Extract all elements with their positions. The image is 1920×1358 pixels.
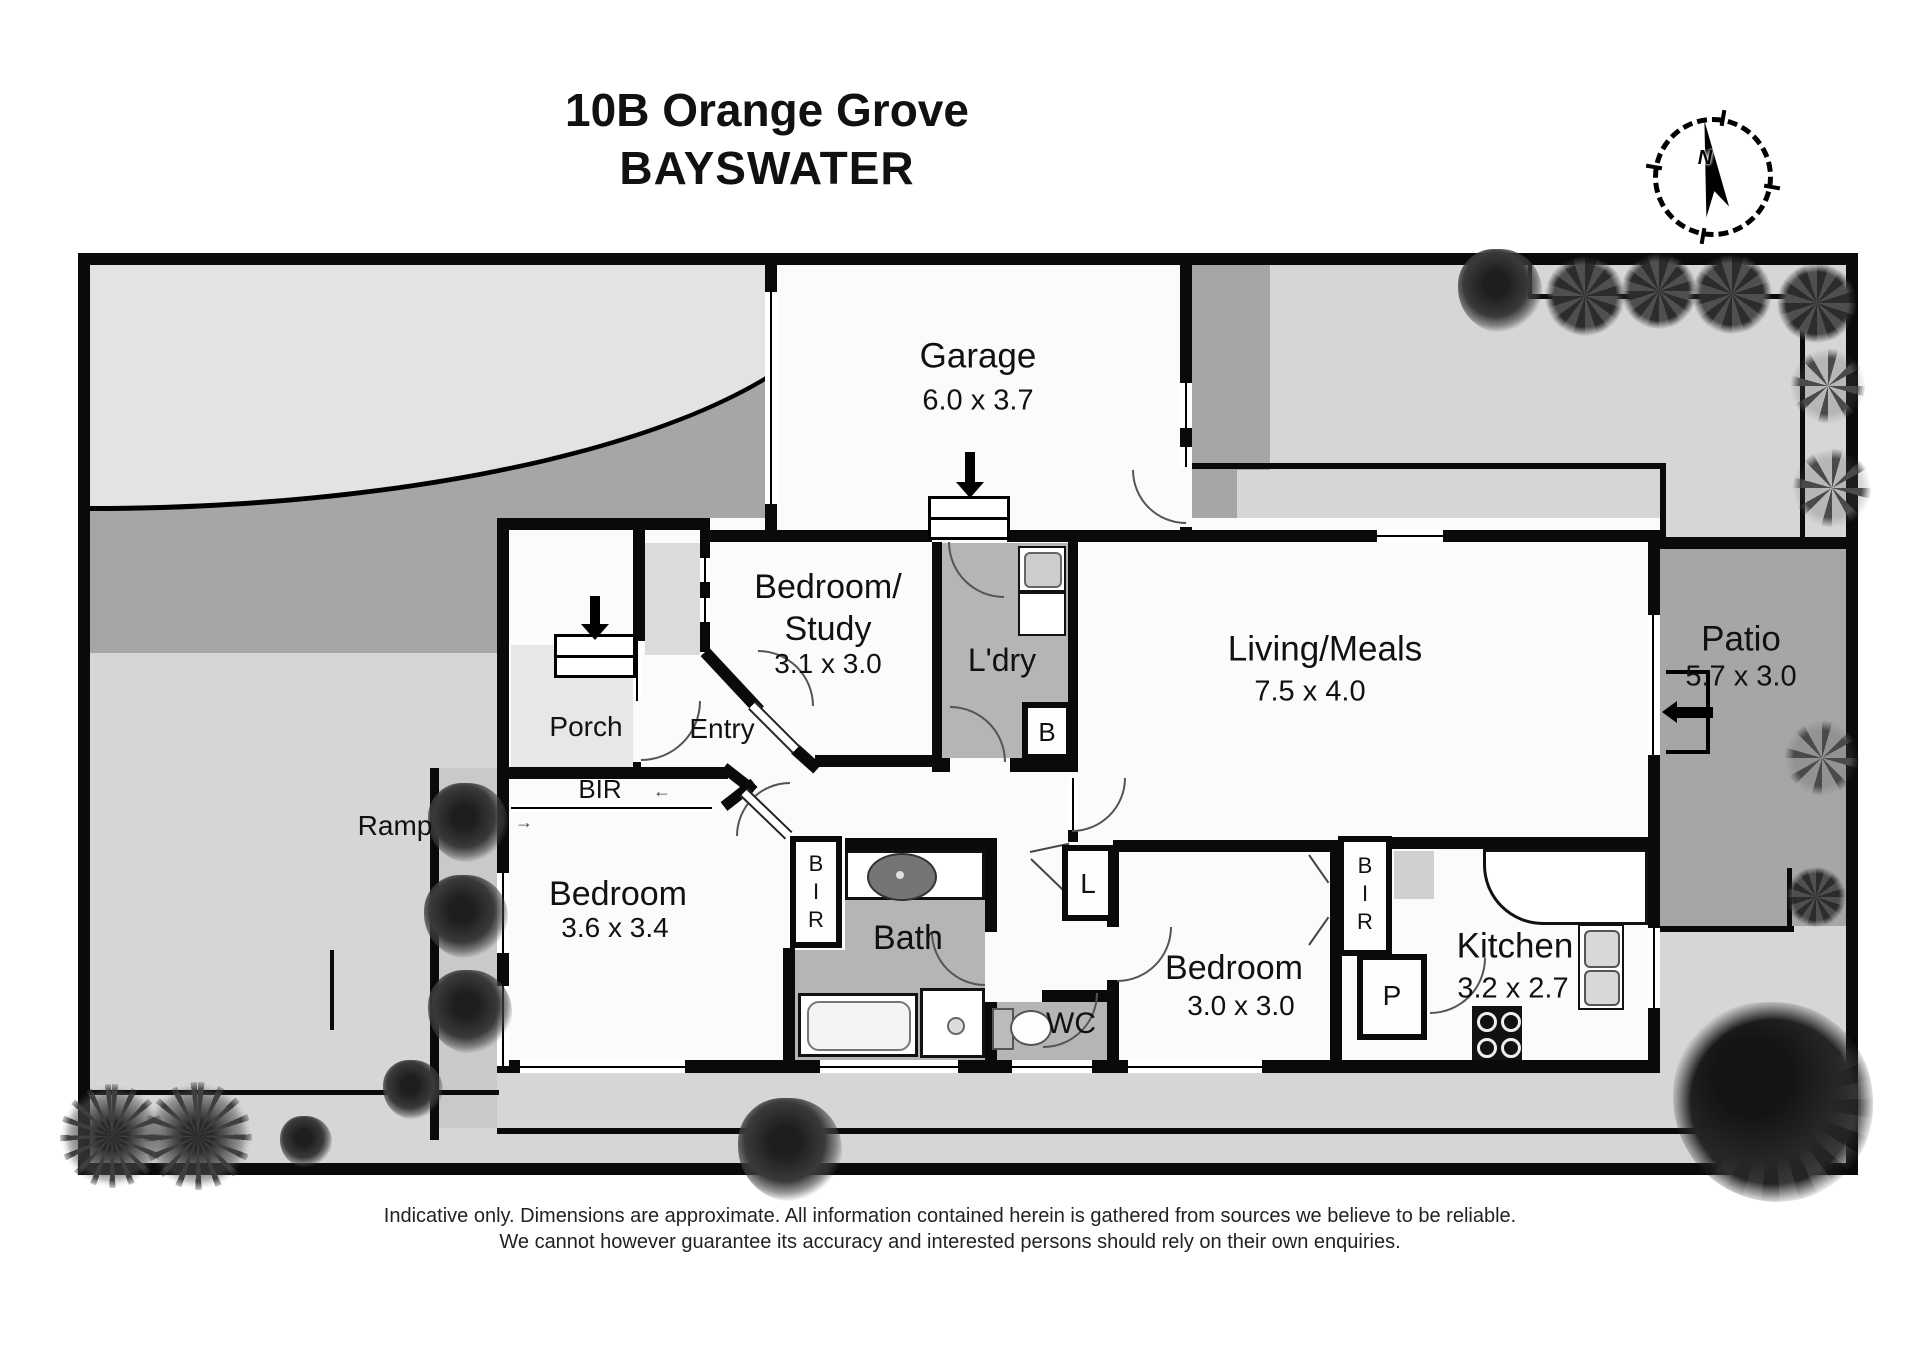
plan-region (1192, 265, 1270, 470)
site-line (1660, 926, 1794, 932)
plant-icon (1792, 448, 1872, 528)
landing-floor (645, 543, 700, 655)
bedroom2-dims: 3.0 x 3.0 (1187, 992, 1294, 1020)
wall (1648, 1008, 1660, 1073)
wall (1180, 258, 1192, 383)
arrow-head-icon (581, 624, 609, 640)
compass-north-label: N (1698, 148, 1712, 168)
patio-entry-arrow-icon (1677, 707, 1713, 718)
window (1012, 1060, 1092, 1073)
laundry-label: L'dry (968, 644, 1036, 676)
plan-region (807, 1001, 911, 1051)
wall (497, 518, 509, 767)
bir1-letter-i: I (813, 881, 819, 903)
window (765, 292, 777, 504)
plan-region (1477, 1012, 1497, 1032)
plant-icon (1784, 720, 1860, 796)
window (1180, 447, 1192, 467)
bedroom2-label: Bedroom (1165, 951, 1303, 985)
wall (1648, 755, 1660, 928)
plan-region (90, 523, 508, 653)
yucca-icon (144, 1082, 252, 1190)
wall (1443, 530, 1648, 542)
window (1377, 530, 1443, 542)
patio-sliding-door (1648, 615, 1658, 755)
door-opening (633, 701, 641, 762)
bir1-letter-r: R (808, 909, 824, 931)
arrow-head-icon (1662, 701, 1677, 723)
bir-band-label: BIR (578, 776, 621, 802)
bush-icon (1621, 253, 1697, 329)
bush-icon (280, 1116, 332, 1168)
wall (1192, 530, 1377, 542)
plan-region (1024, 552, 1062, 588)
garage-dims: 6.0 x 3.7 (922, 387, 1033, 416)
linen-cupboard-label: L (1080, 870, 1096, 898)
wall (1010, 758, 1068, 772)
window (700, 598, 710, 622)
porch-entry-arrow-icon (590, 596, 600, 624)
wall (1113, 840, 1338, 852)
wall (700, 582, 710, 598)
plant-icon (1790, 348, 1866, 424)
window (520, 1060, 685, 1073)
bedroom1-label: Bedroom (549, 877, 687, 911)
plan-region (1584, 970, 1620, 1006)
bir2-letter-b: B (1358, 855, 1373, 877)
bath-label: Bath (873, 921, 943, 955)
plan-region (896, 871, 904, 879)
window (1180, 383, 1192, 428)
wall (508, 518, 710, 530)
wall (633, 518, 645, 641)
ramp-label: Ramp (358, 812, 433, 840)
floor-plan: 10B Orange Grove BAYSWATER (0, 0, 1920, 1358)
patio-wall (1660, 537, 1850, 549)
bathtub-icon (798, 993, 918, 1057)
laundry-trough (1018, 546, 1066, 592)
bedroom-study-dims: 3.1 x 3.0 (774, 650, 881, 678)
plan-region (1584, 930, 1620, 968)
wall (1648, 530, 1660, 615)
bush-icon (383, 1060, 443, 1120)
kitchen-counter (1483, 849, 1648, 925)
slide-arrow-right: → (515, 813, 533, 831)
pantry-label: P (1383, 982, 1402, 1010)
window (1648, 928, 1660, 1008)
bir2-letter-r: R (1357, 911, 1373, 933)
plan-region (1501, 1012, 1521, 1032)
porch-steps (554, 634, 636, 678)
bedroom-study-label1: Bedroom/ (754, 570, 901, 604)
arrow-head-icon (956, 482, 984, 498)
wall (1392, 837, 1648, 849)
boundary-south (78, 1163, 1858, 1175)
wall (1262, 1060, 1660, 1073)
bush-icon (1545, 256, 1625, 336)
wall (1092, 1060, 1128, 1073)
door-opening (987, 990, 1042, 1002)
slide-arrow-left: ← (653, 782, 671, 800)
plan-region (947, 1017, 965, 1035)
garage-steps (928, 496, 1010, 540)
plan-region (1477, 1038, 1497, 1058)
wall (765, 530, 932, 542)
shower-icon (920, 988, 985, 1058)
kitchen-dims: 3.2 x 2.7 (1457, 975, 1568, 1004)
wall (815, 755, 932, 767)
site-line (1660, 463, 1666, 543)
garage-label: Garage (920, 339, 1037, 374)
bush-icon (1786, 867, 1846, 927)
window (820, 1060, 958, 1073)
laundry-entry-arrow-icon (965, 452, 975, 482)
disclaimer-line2: We cannot however guarantee its accuracy… (499, 1232, 1400, 1252)
wall (685, 1060, 820, 1073)
wall (932, 542, 942, 762)
plan-region (1501, 1038, 1521, 1058)
wall (932, 758, 950, 772)
bush-icon (738, 1098, 842, 1202)
porch-label: Porch (549, 713, 622, 741)
entry-label: Entry (689, 715, 754, 743)
wall (845, 838, 997, 850)
wall (783, 948, 795, 1060)
window (1128, 1060, 1262, 1073)
storage-nook (1394, 851, 1434, 899)
living-meals-dims: 7.5 x 4.0 (1254, 678, 1365, 707)
patio-label: Patio (1701, 622, 1781, 657)
door-opening (985, 932, 997, 990)
bir2-letter-i: I (1362, 883, 1368, 905)
boundary-west (78, 253, 90, 1175)
washing-machine (1018, 592, 1066, 636)
wall (700, 530, 710, 558)
wall (1180, 428, 1192, 447)
kitchen-sink-icon (1578, 924, 1624, 1010)
wall (1007, 530, 1192, 542)
patio-dims: 5.7 x 3.0 (1685, 663, 1796, 692)
bush-icon (1777, 263, 1857, 343)
bush-icon (1692, 254, 1772, 334)
kitchen-label: Kitchen (1457, 929, 1574, 964)
bedroom-study-label2: Study (785, 612, 872, 646)
bedroom1-dims: 3.6 x 3.4 (561, 914, 668, 942)
site-line (330, 950, 334, 1030)
bir1-letter-b: B (809, 853, 824, 875)
broom-cupboard-label: B (1038, 719, 1055, 745)
disclaimer-line1: Indicative only. Dimensions are approxim… (384, 1206, 1516, 1226)
site-line (1192, 463, 1666, 469)
plan-title-suburb: BAYSWATER (619, 145, 914, 191)
wall (1107, 980, 1119, 1060)
living-meals-label: Living/Meals (1228, 632, 1423, 667)
wall (958, 1060, 1012, 1073)
stove-icon (1472, 1006, 1522, 1060)
wc-label: WC (1046, 1009, 1096, 1039)
window (511, 803, 712, 813)
wall (765, 258, 777, 292)
wall (985, 850, 997, 932)
plan-title-street: 10B Orange Grove (565, 87, 969, 133)
site-line (497, 1128, 1848, 1134)
window (700, 558, 710, 582)
